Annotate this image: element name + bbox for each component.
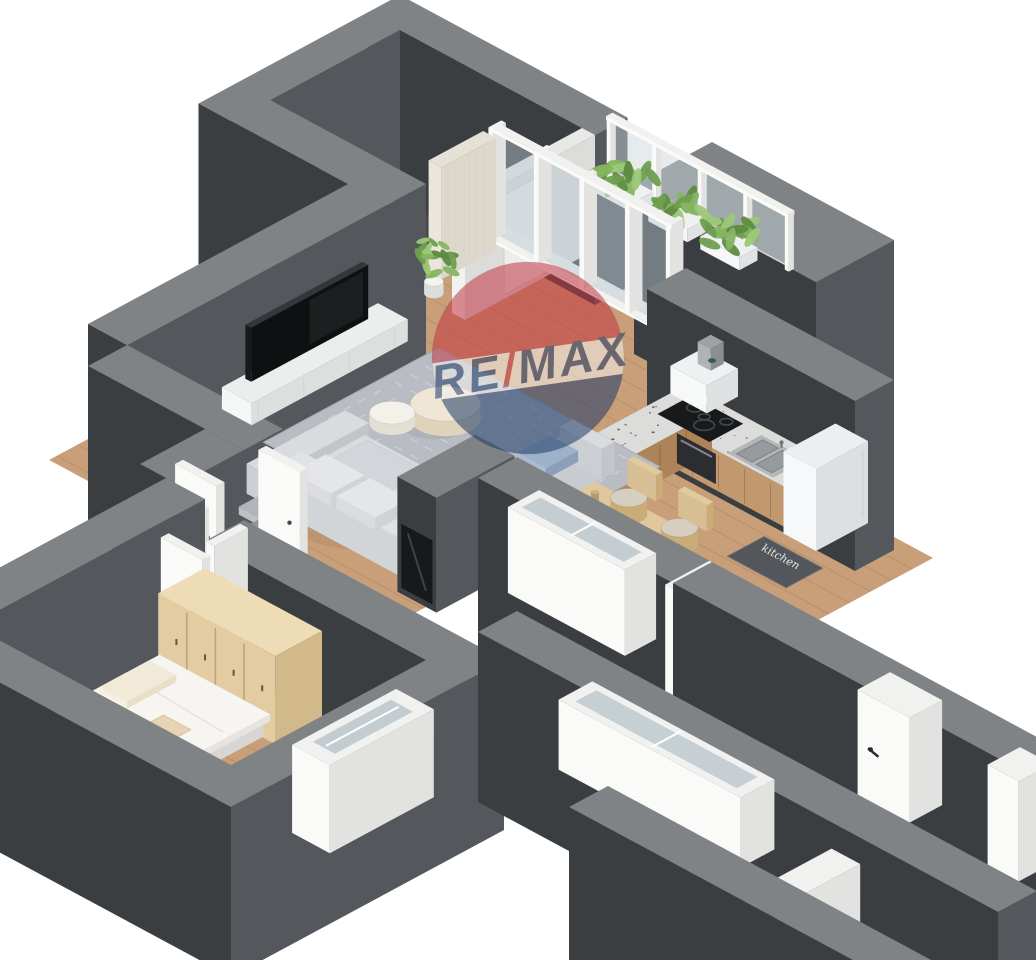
corridor-far-door-panel <box>988 747 1036 881</box>
entry-door <box>858 672 943 823</box>
isometric-floorplan-svg: kitchen RE/MAX <box>0 0 1036 960</box>
floorplan-scene <box>0 0 1036 960</box>
floor-plan-render: kitchen RE/MAX <box>0 0 1036 960</box>
